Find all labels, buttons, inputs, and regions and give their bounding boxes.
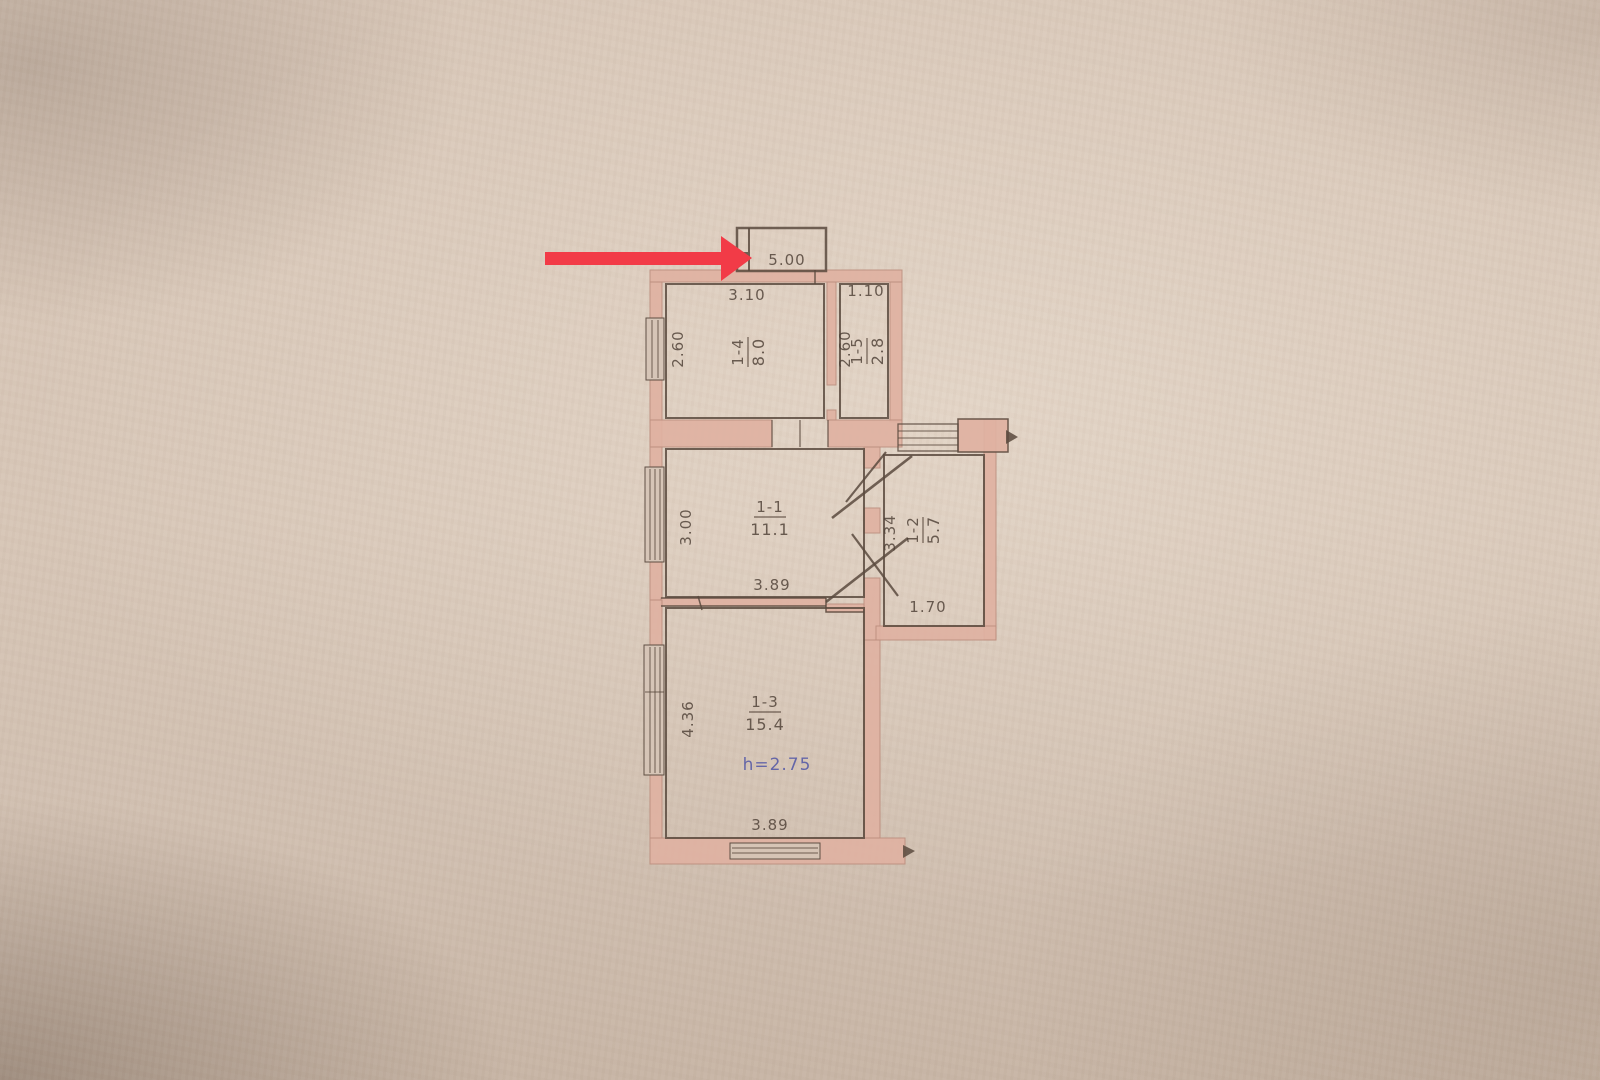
- room-id: 1-2: [904, 516, 922, 544]
- window-r11: [645, 467, 664, 562]
- dim-r14-width: 3.10: [728, 286, 765, 304]
- dim-r15-width: 1.10: [847, 282, 884, 300]
- wall-hall-left: [650, 420, 772, 447]
- room-label-r11: 1-1 11.1: [750, 498, 790, 539]
- room-id: 1-1: [756, 498, 784, 516]
- room-area: 5.7: [924, 516, 943, 544]
- walls: [650, 270, 1008, 864]
- red-arrow-shaft: [545, 252, 723, 265]
- entry-arrow-tick: [1006, 430, 1018, 444]
- dim-r11-width: 3.89: [753, 576, 790, 594]
- dim-r13-depth: 4.36: [679, 700, 697, 737]
- wall-hall-right: [828, 420, 902, 447]
- dim-r11-depth: 3.00: [677, 508, 695, 545]
- bottom-wall-tick: [903, 845, 915, 858]
- wall-left-low-b: [650, 775, 662, 838]
- wall-left-mid-a: [650, 447, 662, 467]
- room-id: 1-5: [848, 337, 866, 365]
- window-bottom: [730, 843, 820, 859]
- ceiling-height-note: h=2.75: [743, 755, 812, 775]
- dim-r14-depth: 2.60: [669, 330, 687, 367]
- wall-right-upper: [890, 282, 902, 422]
- svg-text:2.60: 2.60: [669, 330, 687, 367]
- window-r13: [644, 645, 664, 775]
- room-id: 1-4: [729, 338, 747, 366]
- entry-stoop: [958, 419, 1008, 452]
- room-area: 11.1: [750, 520, 790, 539]
- room-label-r12: 1-2 5.7: [904, 516, 943, 544]
- svg-text:3.34: 3.34: [881, 514, 899, 551]
- floor-plan-photo: 5.00 3.10 1.10 2.60 1-4 8.0 2.60 1-5 2.8…: [0, 0, 1600, 1080]
- svg-text:4.36: 4.36: [679, 700, 697, 737]
- wall-r11-r12-a: [864, 447, 880, 468]
- room-label-r15: 1-5 2.8: [848, 337, 887, 365]
- dim-r12-depth: 3.34: [881, 514, 899, 551]
- room-label-r13: 1-3 15.4: [745, 693, 785, 734]
- partition-r14-r15-stub: [827, 410, 836, 420]
- wall-r12-bottom: [876, 626, 996, 640]
- partition-r14-r15: [827, 282, 836, 385]
- wall-left-upper-a: [650, 282, 662, 318]
- window-r14: [646, 318, 664, 380]
- partition-r11-r13: [661, 598, 826, 606]
- dim-r13-width: 3.89: [751, 816, 788, 834]
- room-label-r14: 1-4 8.0: [729, 337, 768, 367]
- floor-plan-drawing: 5.00 3.10 1.10 2.60 1-4 8.0 2.60 1-5 2.8…: [0, 0, 1600, 1080]
- wall-right-low: [864, 640, 880, 838]
- room-area: 15.4: [745, 715, 785, 734]
- dim-balcony: 5.00: [768, 251, 805, 269]
- wall-left-low-a: [650, 600, 662, 645]
- room-area: 2.8: [868, 337, 887, 365]
- wall-left-mid-b: [650, 562, 662, 600]
- svg-text:3.00: 3.00: [677, 508, 695, 545]
- dim-r12-width: 1.70: [909, 598, 946, 616]
- wall-r11-r12-b: [864, 508, 880, 533]
- room-id: 1-3: [751, 693, 779, 711]
- room-area: 8.0: [749, 338, 768, 366]
- labels: 5.00 3.10 1.10 2.60 1-4 8.0 2.60 1-5 2.8…: [669, 251, 947, 834]
